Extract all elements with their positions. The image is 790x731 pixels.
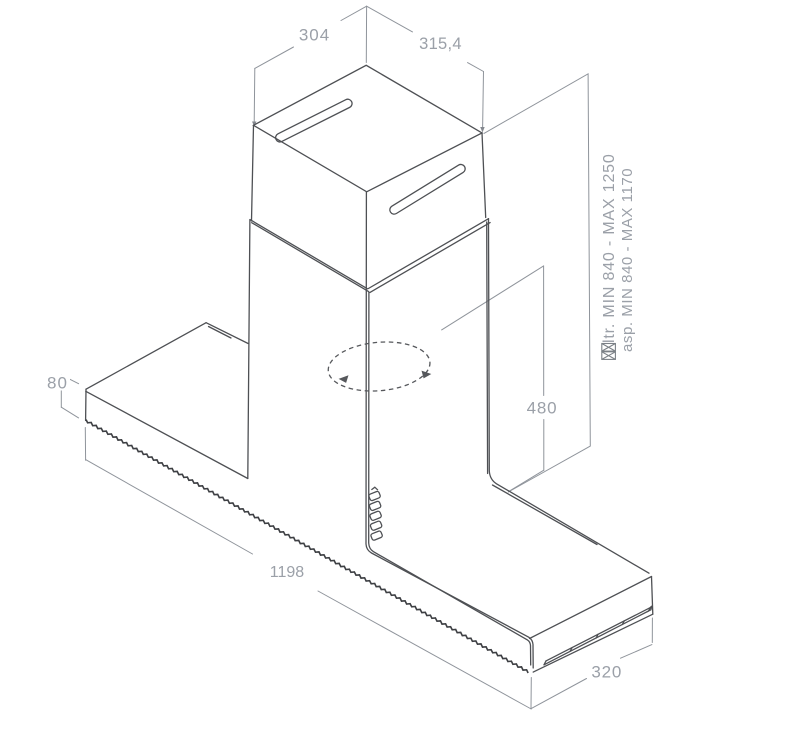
svg-text:320: 320 [591, 662, 622, 681]
svg-text:asp. MIN 840 - MAX 1170: asp. MIN 840 - MAX 1170 [619, 168, 636, 352]
svg-text:480: 480 [527, 398, 558, 417]
svg-text:ltr. MIN 840 - MAX 1250: ltr. MIN 840 - MAX 1250 [601, 153, 618, 343]
svg-text:80: 80 [47, 374, 68, 393]
svg-text:304: 304 [299, 26, 330, 45]
svg-text:1198: 1198 [270, 564, 305, 581]
svg-text:315,4: 315,4 [419, 35, 462, 53]
